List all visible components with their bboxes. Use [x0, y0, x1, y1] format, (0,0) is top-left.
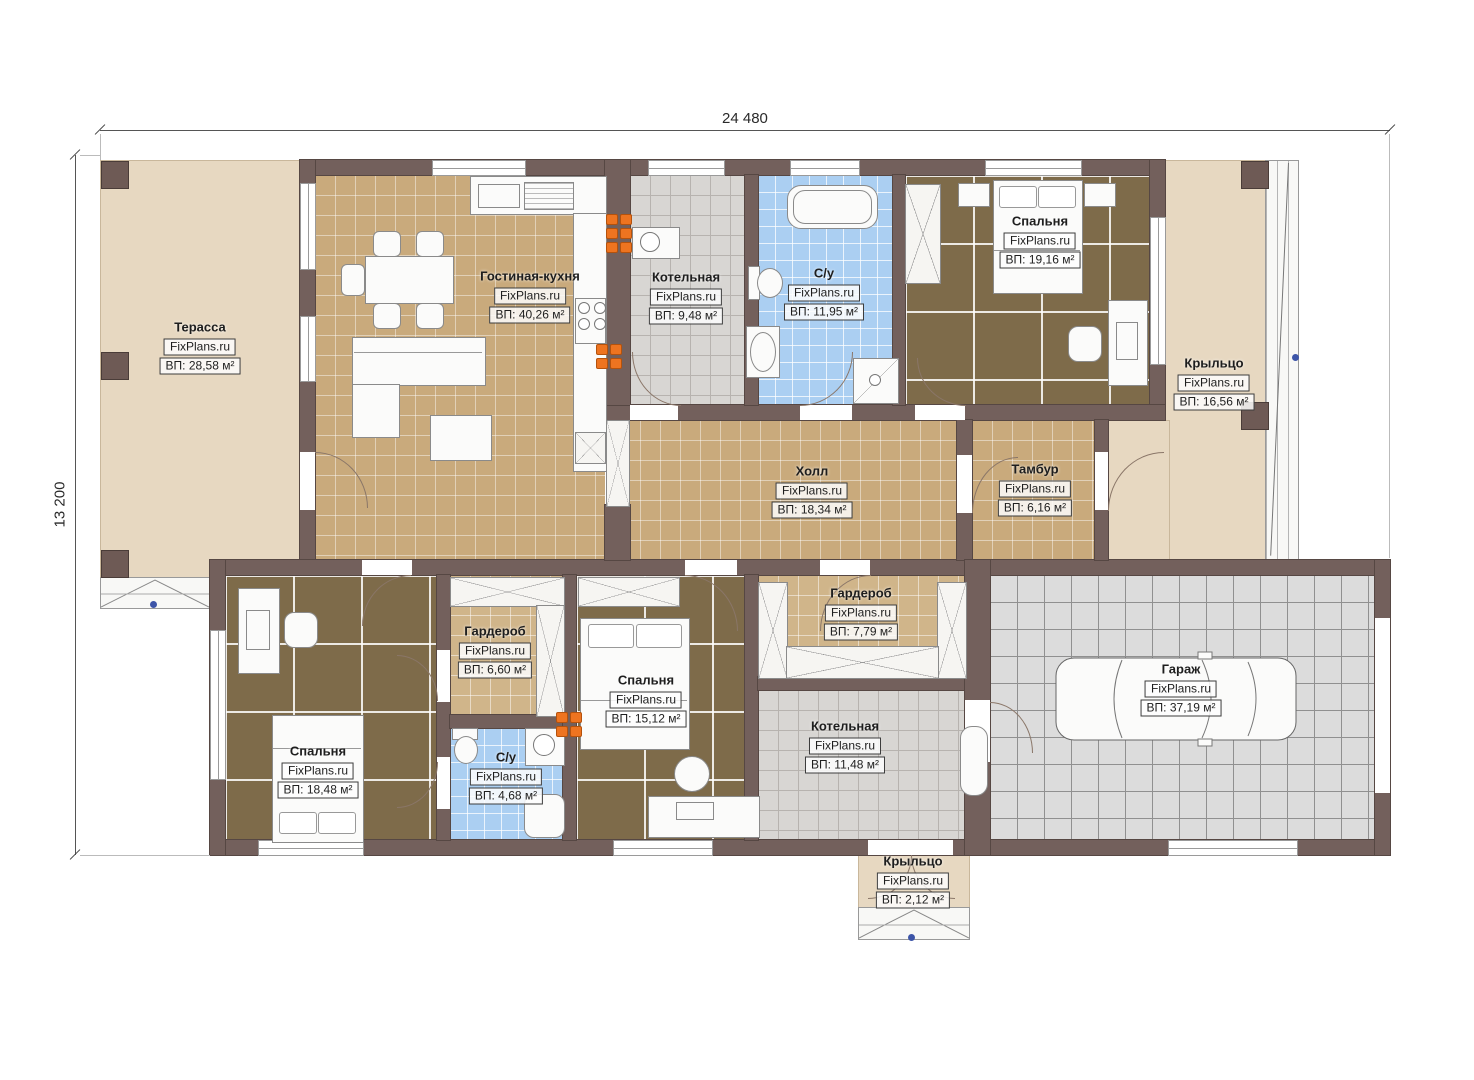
- room-label-boiler-top: Котельная FixPlans.ru ВП: 9,48 м²: [649, 270, 723, 325]
- wall: [605, 505, 630, 560]
- room-area: ВП: 11,48 м²: [805, 757, 885, 774]
- wall: [605, 405, 1165, 420]
- kitchen-cabinet: [606, 420, 630, 507]
- dimension-line-left: [75, 155, 76, 855]
- room-label-bedroom-top: Спальня FixPlans.ru ВП: 19,16 м²: [1000, 214, 1081, 269]
- room-label-bathroom-top: С/у FixPlans.ru ВП: 11,95 м²: [784, 266, 864, 321]
- room-watermark: FixPlans.ru: [459, 643, 531, 660]
- room-area: ВП: 9,48 м²: [649, 308, 723, 325]
- room-label-bedroom-left: Спальня FixPlans.ru ВП: 18,48 м²: [278, 744, 359, 799]
- printer: [676, 802, 714, 820]
- door-opening: [1095, 452, 1108, 510]
- room-watermark: FixPlans.ru: [610, 692, 682, 709]
- room-area: ВП: 37,19 м²: [1141, 700, 1222, 717]
- computer: [1116, 322, 1138, 360]
- room-watermark: FixPlans.ru: [1004, 233, 1076, 250]
- room-watermark: FixPlans.ru: [1178, 375, 1250, 392]
- door-opening: [820, 560, 870, 575]
- chair: [416, 303, 444, 329]
- door-opening: [362, 560, 412, 575]
- washer-drum: [640, 232, 660, 252]
- sofa-back-line: [354, 352, 482, 353]
- room-area: ВП: 11,95 м²: [784, 304, 864, 321]
- window: [432, 160, 526, 176]
- room-name: Спальня: [618, 673, 674, 688]
- room-area: ВП: 6,16 м²: [998, 500, 1072, 517]
- closet: [536, 605, 565, 717]
- room-name: Спальня: [1012, 214, 1068, 229]
- marker-dot: [908, 934, 915, 941]
- room-watermark: FixPlans.ru: [1145, 681, 1217, 698]
- door-opening: [957, 455, 972, 513]
- window: [300, 316, 316, 382]
- window: [790, 160, 860, 176]
- dim-extension: [80, 155, 100, 156]
- room-name: Крыльцо: [1184, 356, 1243, 371]
- closet: [758, 582, 788, 679]
- room-name: Гостиная-кухня: [480, 269, 580, 284]
- pillow: [1038, 186, 1076, 208]
- computer: [246, 610, 270, 650]
- window: [1168, 840, 1298, 856]
- room-name: Котельная: [652, 270, 720, 285]
- door-opening: [915, 405, 965, 420]
- room-label-wardrobe-left: Гардероб FixPlans.ru ВП: 6,60 м²: [458, 624, 532, 679]
- room-watermark: FixPlans.ru: [825, 605, 897, 622]
- water-heater: [960, 726, 988, 796]
- room-area: ВП: 40,26 м²: [490, 307, 571, 324]
- room-area: ВП: 15,12 м²: [606, 711, 687, 728]
- room-area: ВП: 7,79 м²: [824, 624, 898, 641]
- room-label-living-kitchen: Гостиная-кухня FixPlans.ru ВП: 40,26 м²: [480, 269, 580, 324]
- room-label-terrace: Терасса FixPlans.ru ВП: 28,58 м²: [160, 320, 241, 375]
- room-watermark: FixPlans.ru: [282, 763, 354, 780]
- toilet-bowl: [757, 268, 783, 298]
- bathtub-inner: [793, 190, 872, 224]
- closet: [905, 184, 941, 284]
- sink-bowl: [750, 332, 776, 372]
- room-label-bathroom-bottom: С/у FixPlans.ru ВП: 4,68 м²: [469, 750, 543, 805]
- coffee-table: [430, 415, 492, 461]
- closet: [786, 646, 939, 679]
- shower-drain: [869, 374, 881, 386]
- room-watermark: FixPlans.ru: [494, 288, 566, 305]
- terrace-post: [101, 352, 129, 380]
- room-watermark: FixPlans.ru: [877, 873, 949, 890]
- room-area: ВП: 18,48 м²: [278, 782, 359, 799]
- room-name: Терасса: [174, 320, 226, 335]
- chair: [341, 264, 365, 296]
- room-area: ВП: 28,58 м²: [160, 358, 241, 375]
- room-name: Тамбур: [1011, 462, 1058, 477]
- window: [1150, 217, 1166, 365]
- kitchen-cabinet: [575, 432, 606, 464]
- terrace-post: [101, 161, 129, 189]
- sofa: [352, 337, 486, 386]
- room-label-boiler-bottom: Котельная FixPlans.ru ВП: 11,48 м²: [805, 719, 885, 774]
- room-watermark: FixPlans.ru: [809, 738, 881, 755]
- room-area: ВП: 18,34 м²: [772, 502, 853, 519]
- room-name: Крыльцо: [883, 854, 942, 869]
- room-name: С/у: [814, 266, 834, 281]
- room-watermark: FixPlans.ru: [470, 769, 542, 786]
- dish-rack: [524, 182, 574, 210]
- room-name: С/у: [496, 750, 516, 765]
- room-label-porch-bottom: Крыльцо FixPlans.ru ВП: 2,12 м²: [876, 854, 950, 909]
- pillow: [588, 624, 634, 648]
- closet: [937, 582, 967, 679]
- room-label-garage: Гараж FixPlans.ru ВП: 37,19 м²: [1141, 662, 1222, 717]
- pillow: [318, 812, 356, 834]
- window: [613, 840, 713, 856]
- window: [648, 160, 725, 176]
- room-name: Гардероб: [830, 586, 891, 601]
- room-watermark: FixPlans.ru: [776, 483, 848, 500]
- porch-post: [1241, 161, 1269, 189]
- electric-panel-icon: [596, 344, 621, 369]
- nightstand: [958, 183, 990, 207]
- room-area: ВП: 2,12 м²: [876, 892, 950, 909]
- room-area: ВП: 19,16 м²: [1000, 252, 1081, 269]
- desk-chair: [1068, 326, 1102, 362]
- nightstand: [1084, 183, 1116, 207]
- door-opening: [685, 560, 737, 575]
- ottoman: [674, 756, 710, 792]
- room-label-vestibule: Тамбур FixPlans.ru ВП: 6,16 м²: [998, 462, 1072, 517]
- room-watermark: FixPlans.ru: [650, 289, 722, 306]
- closet: [578, 577, 680, 607]
- chair: [373, 303, 401, 329]
- marker-dot: [150, 601, 157, 608]
- electric-panel-icon: [556, 712, 581, 737]
- dim-extension: [1389, 134, 1390, 558]
- terrace-door-opening: [300, 452, 315, 510]
- room-area: ВП: 4,68 м²: [469, 788, 543, 805]
- room-label-bedroom-mid: Спальня FixPlans.ru ВП: 15,12 м²: [606, 673, 687, 728]
- room-area: ВП: 16,56 м²: [1174, 394, 1255, 411]
- sofa-chaise: [352, 384, 400, 438]
- room-watermark: FixPlans.ru: [164, 339, 236, 356]
- door-opening: [800, 405, 852, 420]
- dimension-line-top: [100, 130, 1390, 131]
- pillow: [279, 812, 317, 834]
- room-name: Спальня: [290, 744, 346, 759]
- door-opening: [630, 405, 678, 420]
- room-name: Гараж: [1162, 662, 1201, 677]
- room-area: ВП: 6,60 м²: [458, 662, 532, 679]
- room-name: Гардероб: [464, 624, 525, 639]
- kitchen-sink: [478, 184, 520, 208]
- room-watermark: FixPlans.ru: [788, 285, 860, 302]
- room-watermark: FixPlans.ru: [999, 481, 1071, 498]
- room-label-hall: Холл FixPlans.ru ВП: 18,34 м²: [772, 464, 853, 519]
- chair: [373, 231, 401, 257]
- dim-extension: [80, 855, 210, 856]
- dining-table: [365, 256, 454, 304]
- floor-plan: 24 480 13 200: [0, 0, 1474, 1080]
- window: [985, 160, 1082, 176]
- room-name: Холл: [796, 464, 829, 479]
- door-opening: [437, 650, 450, 702]
- window: [300, 183, 316, 270]
- marker-dot: [1292, 354, 1299, 361]
- pillow: [999, 186, 1037, 208]
- dim-extension: [100, 134, 101, 160]
- closet: [450, 577, 565, 607]
- electric-panel-icon: [606, 214, 631, 253]
- terrace-post: [101, 550, 129, 578]
- pillow: [636, 624, 682, 648]
- room-label-wardrobe-mid: Гардероб FixPlans.ru ВП: 7,79 м²: [824, 586, 898, 641]
- dimension-height: 13 200: [51, 478, 68, 532]
- window: [210, 630, 226, 780]
- dimension-width: 24 480: [718, 110, 772, 127]
- door-opening: [437, 757, 450, 809]
- garage-door-opening: [1375, 618, 1390, 793]
- chair: [416, 231, 444, 257]
- desk-chair: [284, 612, 318, 648]
- room-name: Котельная: [811, 719, 879, 734]
- room-label-porch-right: Крыльцо FixPlans.ru ВП: 16,56 м²: [1174, 356, 1255, 411]
- stove-burners: [578, 302, 606, 330]
